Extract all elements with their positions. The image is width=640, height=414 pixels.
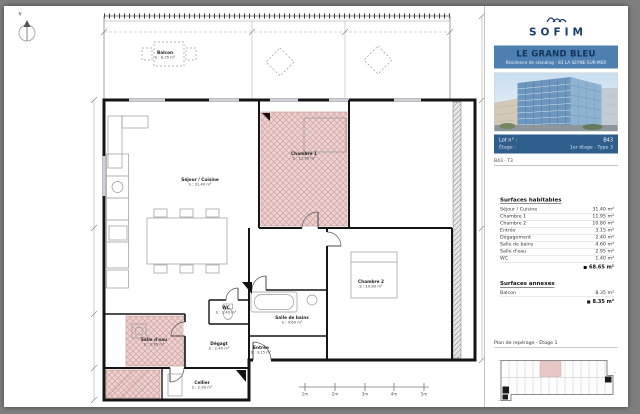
floor-plan-drawing — [4, 6, 484, 407]
north-label: N — [19, 12, 22, 17]
surface-row-value: 31.40 m² — [592, 207, 614, 212]
title-block-panel: SOFIM LE GRAND BLEU Résidence de standin… — [490, 6, 622, 407]
lot-number-label: Lot n° : — [499, 137, 517, 144]
surface-row-label: Chambre 2 — [500, 221, 526, 226]
room-label-entree: Entrée S : 3.15 m² — [251, 346, 272, 355]
surface-row-value: 10.80 m² — [592, 221, 614, 226]
surface-row: Salle de bains4.60 m² — [500, 242, 614, 249]
room-label-salle-d-eau: Salle d'eau S : 2.95 m² — [141, 338, 167, 347]
room-label-chambre-2: Chambre 2 S : 10.80 m² — [358, 280, 384, 289]
room-label-degagement: Dégagt S : 2.40 m² — [209, 342, 230, 351]
surface-row: Chambre 210.80 m² — [500, 221, 614, 228]
surface-row-label: Séjour / Cuisine — [500, 207, 537, 212]
room-label-balcon: Balcon S : 8.35 m² — [155, 51, 176, 60]
surfaces-annexes-table: Surfaces annexes Balcon8.35 m² ■ 8.35 m² — [500, 278, 614, 306]
panel-divider — [484, 6, 485, 407]
floor-value: 1er étage - Type 3 — [570, 144, 613, 151]
total-square-icon: ■ — [587, 299, 591, 305]
annex-row-label: Balcon — [500, 291, 516, 296]
surface-row-value: 11.95 m² — [592, 214, 614, 219]
surfaces-total: ■ 68.65 m² — [500, 265, 614, 271]
surface-row-value: 4.60 m² — [595, 242, 614, 247]
surface-row-label: Salle d'eau — [500, 249, 526, 254]
scale-label-4m: 4m — [391, 392, 397, 397]
surface-row-label: Entrée — [500, 228, 516, 233]
annex-row: Balcon8.35 m² — [500, 290, 614, 297]
scale-label-5m: 5m — [421, 392, 427, 397]
floor-label: Étage : — [499, 144, 516, 151]
annex-row-value: 8.35 m² — [595, 291, 614, 296]
surfaces-habitables-table: Surfaces habitables Séjour / Cuisine31.4… — [500, 194, 614, 271]
scale-label-2m: 2m — [332, 392, 338, 397]
room-label-sejour: Séjour / Cuisine S : 31.40 m² — [181, 178, 218, 187]
scale-bar — [299, 383, 429, 391]
surface-row-value: 2.95 m² — [595, 249, 614, 254]
room-label-cellier: Cellier S : 2.90 m² — [192, 381, 213, 390]
scale-label-3m: 3m — [362, 392, 368, 397]
developer-logo: SOFIM — [490, 13, 622, 39]
surface-row: Séjour / Cuisine31.40 m² — [500, 207, 614, 214]
floor-plan: Balcon S : 8.35 m² Séjour / Cuisine S : … — [4, 6, 484, 407]
north-arrow-icon — [19, 20, 35, 41]
reference-row: B43 - T3 — [494, 159, 618, 167]
surfaces-annexes-title: Surfaces annexes — [500, 280, 555, 288]
lot-number-row: Lot n° : B43 — [499, 137, 613, 144]
surface-row: Salle d'eau2.95 m² — [500, 249, 614, 256]
surface-row-label: Chambre 1 — [500, 214, 526, 219]
key-plan: Plan de repérage - Étage 1 — [494, 340, 618, 411]
lot-info-box: Lot n° : B43 Étage : 1er étage - Type 3 — [494, 135, 618, 154]
annexes-total: ■ 8.35 m² — [500, 299, 614, 305]
plan-sheet-page: Balcon S : 8.35 m² Séjour / Cuisine S : … — [4, 6, 628, 407]
program-banner: LE GRAND BLEU Résidence de standing - 83… — [494, 46, 618, 69]
total-square-icon: ■ — [583, 265, 587, 271]
surface-row: Entrée3.15 m² — [500, 228, 614, 235]
logo-text: SOFIM — [490, 26, 622, 39]
room-label-wc: WC S : 1.40 m² — [216, 306, 237, 315]
screenshot-root: { "colors": { "banner_blue": "#4d80b0", … — [0, 0, 640, 414]
room-label-salle-de-bains: Salle de bains S : 4.60 m² — [275, 316, 309, 325]
surfaces-total-value: 68.65 m² — [589, 265, 614, 271]
surface-row-label: Salle de bains — [500, 242, 533, 247]
building-photo-illustration — [495, 73, 619, 131]
surfaces-habitables-title: Surfaces habitables — [500, 197, 561, 205]
surface-row-value: 3.15 m² — [595, 228, 614, 233]
annexes-rows: Balcon8.35 m² — [500, 290, 614, 297]
scale-label-1m: 1m — [302, 392, 308, 397]
surfaces-rows: Séjour / Cuisine31.40 m² Chambre 111.95 … — [500, 207, 614, 263]
floor-type-row: Étage : 1er étage - Type 3 — [499, 144, 613, 151]
surface-row: WC1.40 m² — [500, 256, 614, 263]
surface-row: Chambre 111.95 m² — [500, 214, 614, 221]
program-title: LE GRAND BLEU — [496, 49, 616, 59]
sofim-logo-icon — [544, 13, 568, 24]
building-photo — [494, 73, 618, 132]
lot-number-value: B43 — [603, 137, 613, 144]
key-plan-caption: Plan de repérage - Étage 1 — [494, 340, 618, 348]
annexes-total-value: 8.35 m² — [593, 299, 614, 305]
surface-row: Dégagement2.40 m² — [500, 235, 614, 242]
party-wall-hatch — [453, 102, 461, 358]
program-subtitle: Résidence de standing - 83 LA SEYNE-SUR-… — [496, 61, 616, 66]
surface-row-label: WC — [500, 256, 508, 261]
key-plan-drawing — [494, 351, 618, 411]
surface-row-value: 1.40 m² — [595, 256, 614, 261]
doors — [170, 212, 341, 382]
surface-row-value: 2.40 m² — [595, 235, 614, 240]
room-label-chambre-1: Chambre 1 S : 11.95 m² — [291, 152, 317, 161]
surface-row-label: Dégagement — [500, 235, 531, 240]
